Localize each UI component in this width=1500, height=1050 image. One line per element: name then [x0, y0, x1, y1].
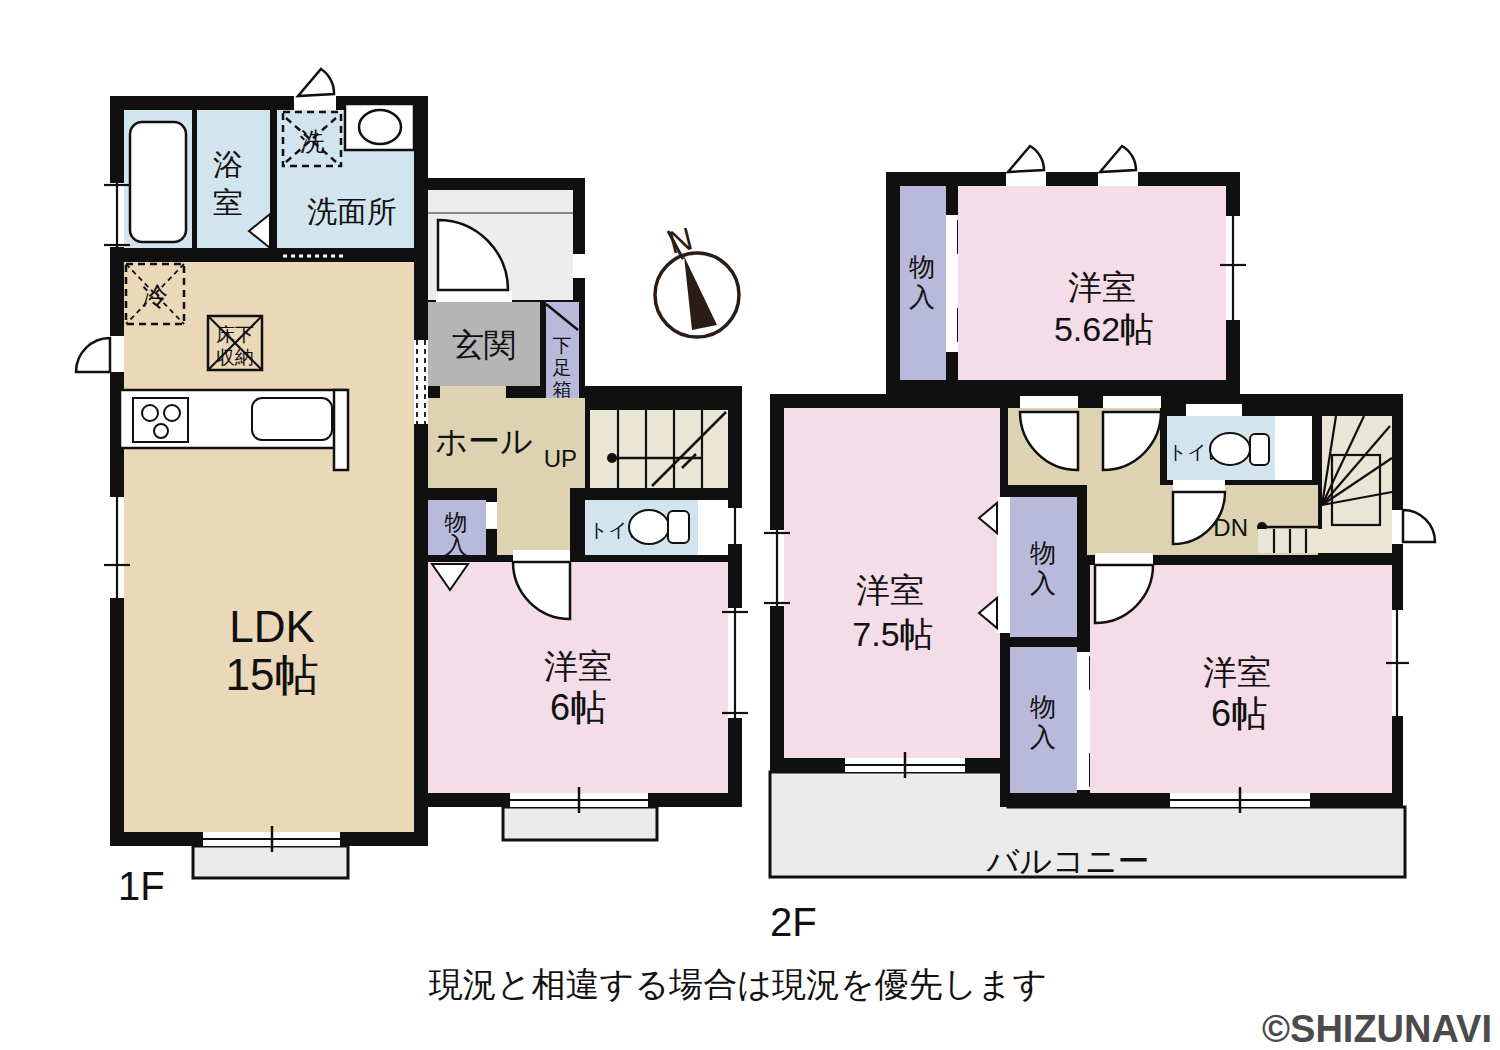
- bathroom-label-1: 浴: [213, 148, 243, 181]
- copyright-watermark: ©SHIZUNAVI: [1262, 1008, 1492, 1050]
- window-awning-icon: [1008, 146, 1044, 172]
- window-toilet-1f-icon: [728, 508, 742, 544]
- storage-2f-upper-label-2: 入: [1030, 568, 1056, 598]
- ldk-size-label: 15帖: [226, 650, 319, 699]
- opening-ldk-hall: [414, 340, 428, 424]
- shoe-box-label-3: 箱: [553, 379, 572, 400]
- floor-2f: 物 入 洋室 5.62帖 洋室 7.5帖: [764, 146, 1435, 879]
- stairs-up-label: UP: [544, 445, 577, 472]
- room6-2f-label: 洋室: [1203, 653, 1271, 691]
- room-western-75: 洋室 7.5帖: [764, 408, 1000, 778]
- ldk-label: LDK: [229, 602, 315, 651]
- balcony-label: バルコニー: [986, 843, 1150, 879]
- entrance-label: 玄関: [452, 327, 516, 363]
- shoe-box-label-2: 足: [553, 357, 572, 378]
- room6-1f-label: 洋室: [544, 647, 612, 685]
- storage-2f-upper-label-1: 物: [1030, 538, 1056, 568]
- washroom-label: 洗面所: [307, 195, 397, 228]
- floor-1f-label: 1F: [118, 864, 165, 908]
- window-awning-icon: [1100, 146, 1136, 172]
- room6-1f-size: 6帖: [550, 687, 606, 728]
- floor-storage-label-1: 床下: [216, 324, 254, 345]
- sink-icon: [359, 110, 401, 144]
- washer-label: 洗: [300, 127, 325, 155]
- room-ldk: 冷 床下 収納 LDK 15帖: [76, 183, 428, 852]
- underfloor-storage-icon: 床下 収納: [208, 316, 262, 370]
- captions: 1F 2F 現況と相違する場合は現況を優先します ©SHIZUNAVI: [118, 864, 1492, 1050]
- kitchen-sink-icon: [252, 398, 332, 440]
- staircase-1f: [590, 410, 728, 488]
- floor-1f: 浴 室 洗 洗面所 冷: [76, 69, 748, 852]
- room-toilet-1f: トイレ: [585, 500, 742, 555]
- storage-1f-label-2: 入: [445, 532, 468, 558]
- bathtub-icon: [130, 122, 186, 242]
- entrance-porch: [428, 190, 585, 302]
- terrace-1f-ldk: [193, 846, 348, 878]
- window-awning-icon: [298, 69, 334, 96]
- fridge-label: 冷: [142, 281, 168, 311]
- room6-2f-size: 6帖: [1211, 693, 1267, 734]
- hall-label: ホール: [435, 423, 533, 459]
- storage-2f-lower-label-1: 物: [1030, 692, 1056, 722]
- door-arc-kitchen-icon: [76, 338, 110, 372]
- storage-2f-lower-label-2: 入: [1030, 722, 1056, 752]
- room562-label: 洋室: [1068, 268, 1136, 306]
- toilet-bowl-icon: [1210, 433, 1250, 465]
- toilet-tank-icon: [1250, 434, 1269, 465]
- floor-2f-label: 2F: [770, 900, 817, 944]
- room-entrance: 玄関 下 足 箱: [428, 302, 579, 408]
- floor-storage-label-2: 収納: [216, 347, 254, 368]
- storage-2f-top-label-1: 物: [909, 252, 935, 282]
- room562-size: 5.62帖: [1054, 310, 1154, 348]
- room75-label: 洋室: [856, 571, 924, 609]
- compass-north-label: N: [665, 220, 696, 261]
- room-western-6-1f: 洋室 6帖: [428, 550, 748, 813]
- door-arc-exterior-icon: [1403, 510, 1435, 542]
- toilet-tank-icon: [668, 511, 689, 543]
- floor-plan-page: 浴 室 洗 洗面所 冷: [0, 0, 1500, 1050]
- room-bathroom: 浴 室: [124, 110, 270, 248]
- north-compass-icon: N: [655, 220, 739, 337]
- room75-size: 7.5帖: [852, 615, 933, 653]
- disclaimer-text: 現況と相違する場合は現況を優先します: [429, 965, 1047, 1003]
- floor-plan-canvas: 浴 室 洗 洗面所 冷: [0, 0, 1500, 1050]
- storage-2f-top-label-2: 入: [909, 282, 935, 312]
- shoe-box-label-1: 下: [553, 335, 572, 356]
- bathroom-label-2: 室: [213, 186, 243, 219]
- toilet-bowl-icon: [629, 510, 669, 544]
- room-western-6-2f: 洋室 6帖: [1090, 553, 1409, 813]
